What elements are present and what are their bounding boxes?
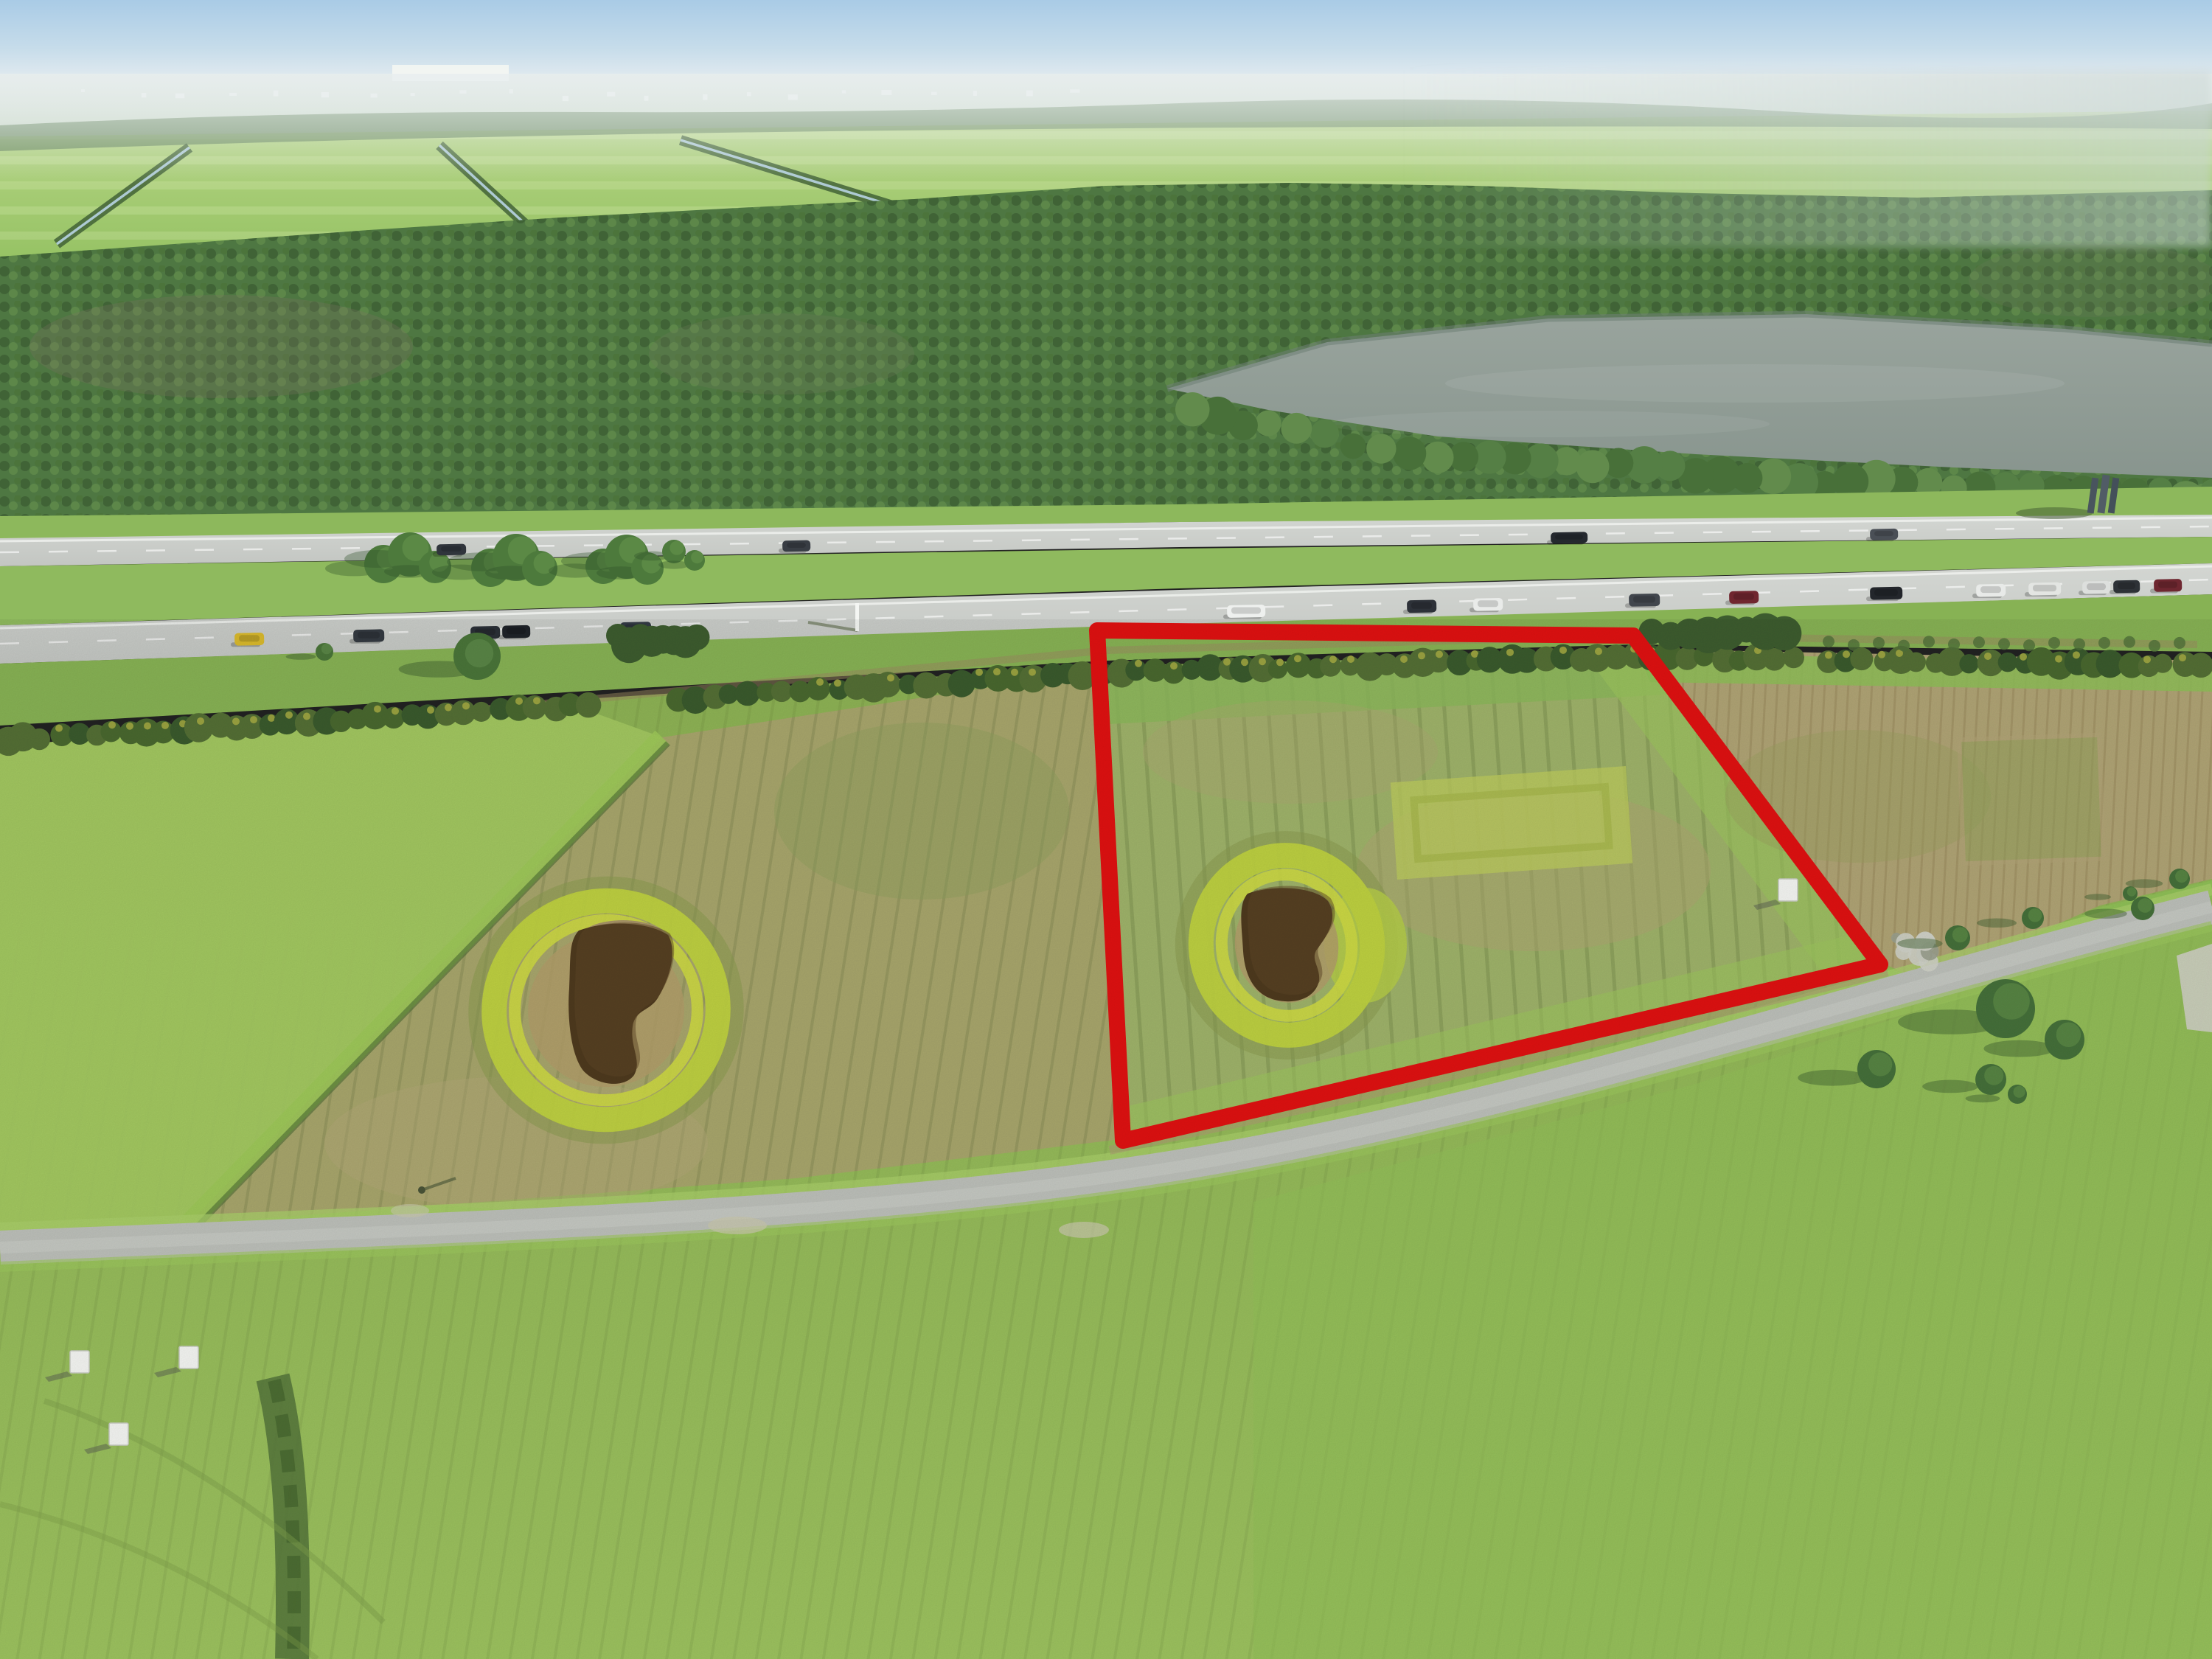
lake-sun-streak <box>1445 364 2065 403</box>
forest-dead-patch <box>649 313 914 394</box>
aerial-photo-stage <box>0 0 2212 1659</box>
lake-sun-streak <box>1327 411 1770 437</box>
forest-right-haze <box>1401 70 2212 247</box>
aerial-photo <box>0 0 2212 1659</box>
forest-dead-patch <box>1969 243 2212 317</box>
forest-dead-patch <box>29 295 413 398</box>
photo-grain <box>0 619 2212 1659</box>
